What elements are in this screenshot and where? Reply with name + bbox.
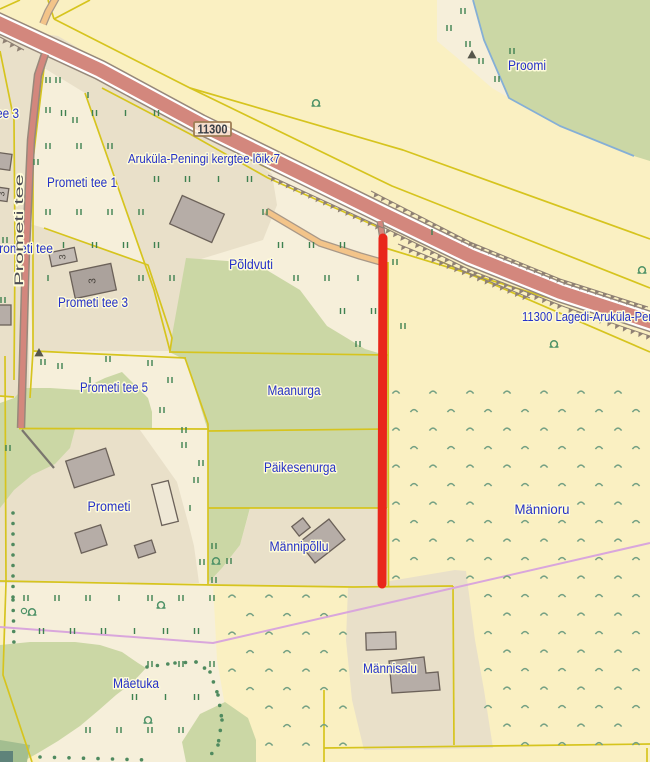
- svg-text:Prometi tee 3: Prometi tee 3: [0, 106, 19, 121]
- svg-text:Prometi: Prometi: [88, 499, 131, 514]
- svg-text:Männipõllu: Männipõllu: [270, 539, 329, 554]
- svg-text:Põldvuti: Põldvuti: [229, 257, 273, 272]
- svg-text:11300 Lagedi-Aruküla-Peningi: 11300 Lagedi-Aruküla-Peningi: [522, 310, 650, 324]
- svg-text:Aruküla-Peningi kergtee lõik‹7: Aruküla-Peningi kergtee lõik‹7: [128, 152, 280, 166]
- svg-text:3: 3: [0, 191, 6, 196]
- svg-text:Maanurga: Maanurga: [268, 383, 321, 398]
- svg-text:Mäetuka: Mäetuka: [113, 676, 159, 691]
- svg-text:Proomi: Proomi: [508, 58, 546, 73]
- svg-text:Prometi tee 1: Prometi tee 1: [47, 175, 117, 190]
- svg-text:Prometi tee 3: Prometi tee 3: [58, 295, 128, 310]
- svg-text:Männioru: Männioru: [515, 502, 570, 517]
- svg-text:Prometi tee 5: Prometi tee 5: [80, 380, 148, 395]
- svg-text:Prometi tee: Prometi tee: [12, 174, 26, 286]
- svg-text:Prometi tee: Prometi tee: [0, 241, 53, 256]
- svg-text:Päikesenurga: Päikesenurga: [264, 460, 336, 475]
- svg-text:Männisalu: Männisalu: [363, 661, 417, 676]
- svg-text:3: 3: [58, 254, 69, 259]
- svg-text:11300: 11300: [198, 123, 228, 137]
- svg-text:3: 3: [88, 278, 99, 284]
